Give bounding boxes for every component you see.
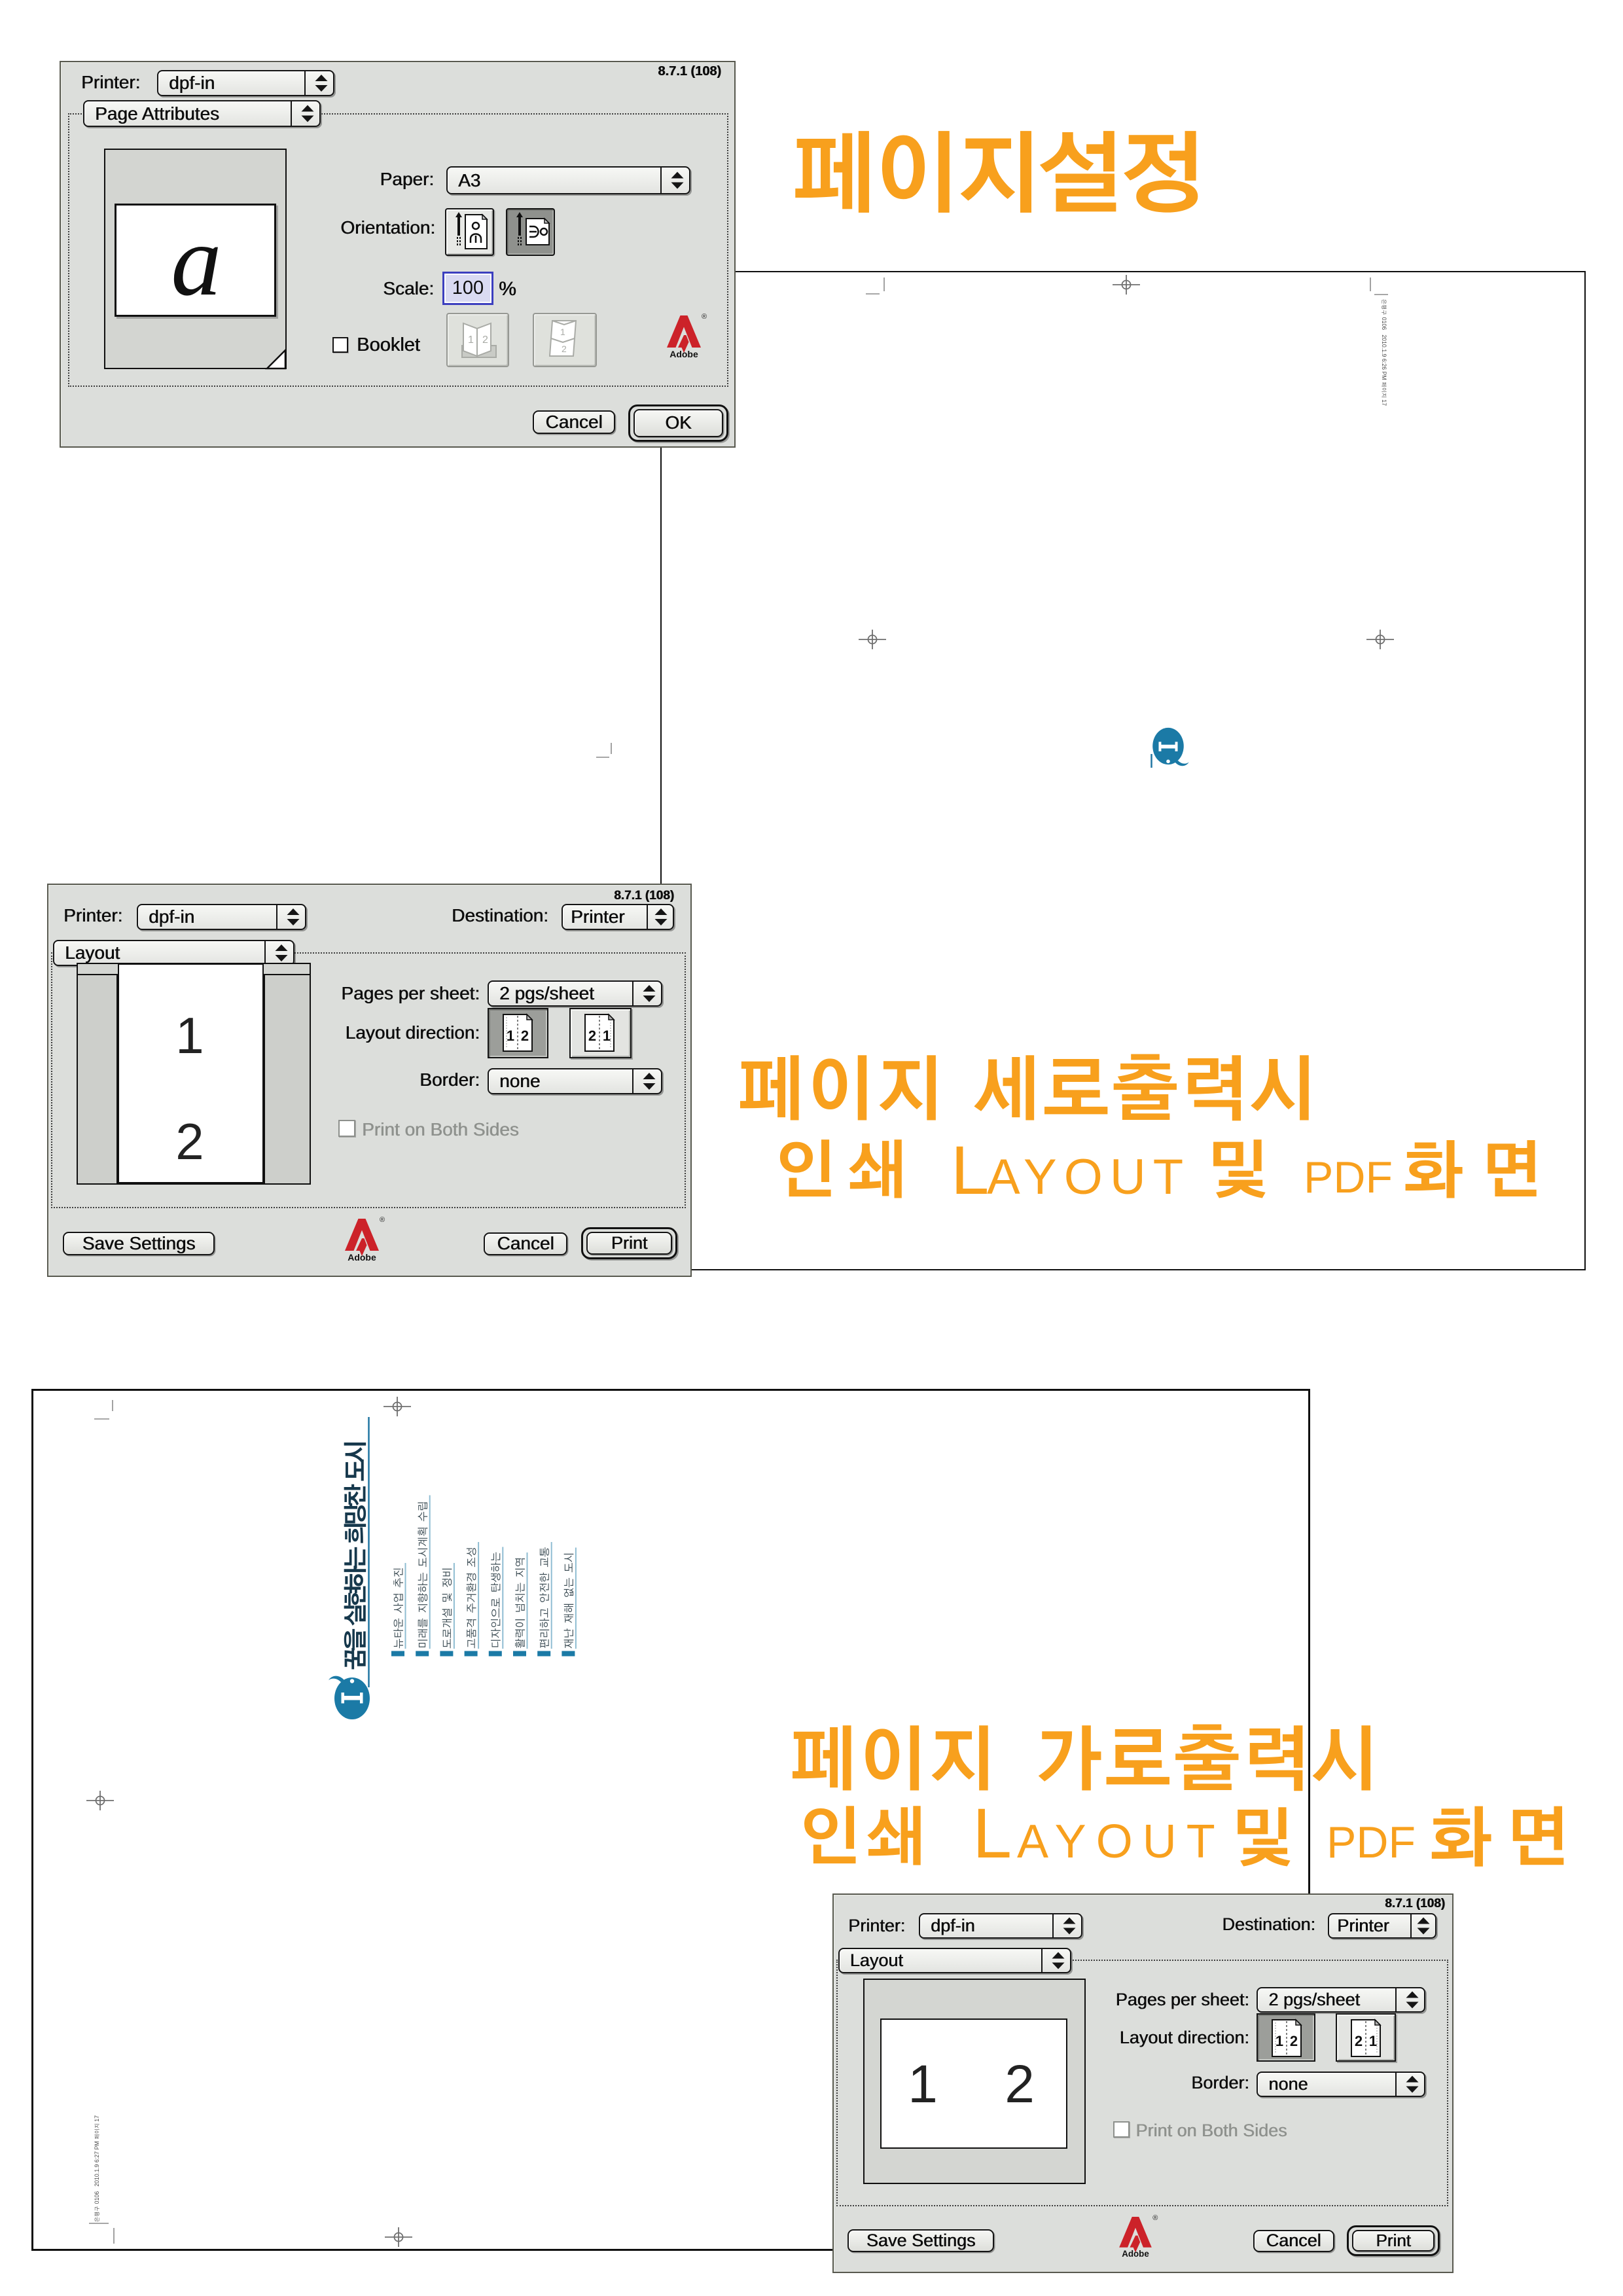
svg-text:Adobe: Adobe <box>669 349 698 359</box>
svg-text:1: 1 <box>603 1028 611 1044</box>
svg-text:1: 1 <box>468 334 474 346</box>
svg-text:1: 1 <box>560 327 565 337</box>
svg-text:2: 2 <box>482 334 488 346</box>
svg-text:2: 2 <box>588 1028 596 1044</box>
svg-text:2: 2 <box>562 344 567 354</box>
svg-text:1: 1 <box>1369 2033 1377 2049</box>
svg-text:Adobe: Adobe <box>1122 2249 1150 2258</box>
svg-text:2: 2 <box>521 1028 529 1044</box>
svg-text:2: 2 <box>1355 2033 1363 2049</box>
svg-text:1: 1 <box>507 1028 514 1044</box>
svg-text:Adobe: Adobe <box>348 1252 376 1262</box>
svg-text:2: 2 <box>1290 2033 1298 2049</box>
svg-text:1: 1 <box>1275 2033 1283 2049</box>
